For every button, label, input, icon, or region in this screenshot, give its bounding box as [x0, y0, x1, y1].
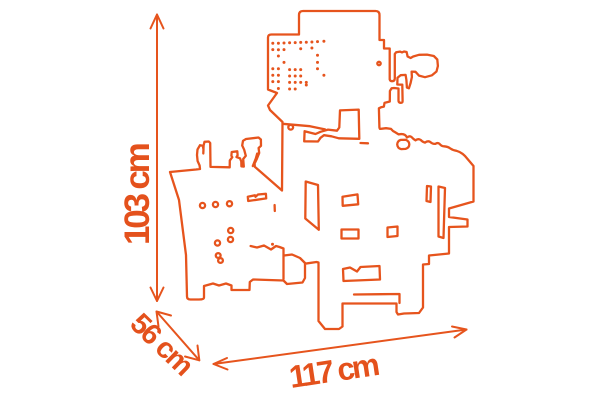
- svg-text:103 cm: 103 cm: [118, 144, 157, 245]
- svg-text:117 cm: 117 cm: [287, 346, 381, 395]
- svg-text:56 cm: 56 cm: [124, 308, 199, 382]
